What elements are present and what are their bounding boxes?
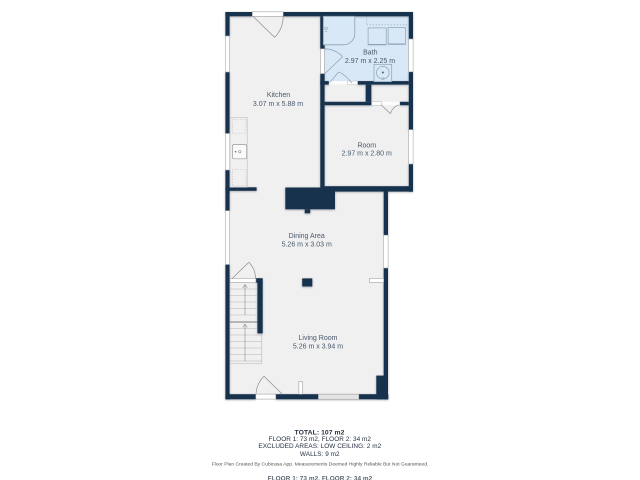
svg-text:EXCLUDED AREAS: LOW CEILING: 2: EXCLUDED AREAS: LOW CEILING: 2 m2 [258,443,381,450]
svg-text:WALLS: 9 m2: WALLS: 9 m2 [300,451,340,458]
svg-text:Bath: Bath [363,49,378,56]
svg-text:Floor Plan Created By Cubicasa: Floor Plan Created By Cubicasa App. Meas… [212,461,429,467]
svg-text:Dining Area: Dining Area [289,233,325,240]
svg-text:Kitchen: Kitchen [267,92,290,99]
svg-text:5.26 m x 3.03 m: 5.26 m x 3.03 m [282,241,332,248]
svg-text:Room: Room [357,142,376,149]
svg-text:FLOOR 1: 73 m2, FLOOR 2: 34 m2: FLOOR 1: 73 m2, FLOOR 2: 34 m2 [268,476,373,480]
svg-text:Living Room: Living Room [299,335,338,342]
svg-text:2.97 m x 2.80 m: 2.97 m x 2.80 m [342,151,392,158]
svg-text:5.26 m x 3.94 m: 5.26 m x 3.94 m [293,343,343,350]
svg-text:2.97 m x 2.25 m: 2.97 m x 2.25 m [345,58,395,65]
svg-text:3.07 m x 5.88 m: 3.07 m x 5.88 m [253,101,303,108]
